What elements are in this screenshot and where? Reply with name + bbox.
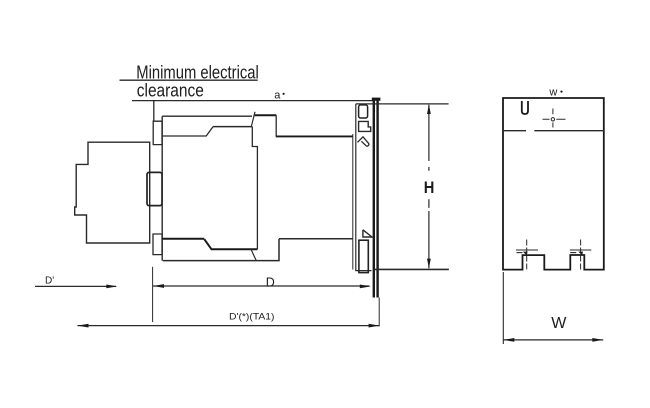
svg-text:H: H	[424, 178, 435, 197]
svg-text:clearance: clearance	[137, 79, 204, 100]
svg-text:w: w	[548, 86, 557, 98]
svg-text:D'(*)(TA1): D'(*)(TA1)	[229, 311, 275, 321]
svg-text:a: a	[274, 89, 281, 101]
svg-text:W: W	[551, 315, 567, 332]
svg-text:D: D	[266, 276, 275, 290]
svg-text:D': D'	[45, 276, 54, 287]
